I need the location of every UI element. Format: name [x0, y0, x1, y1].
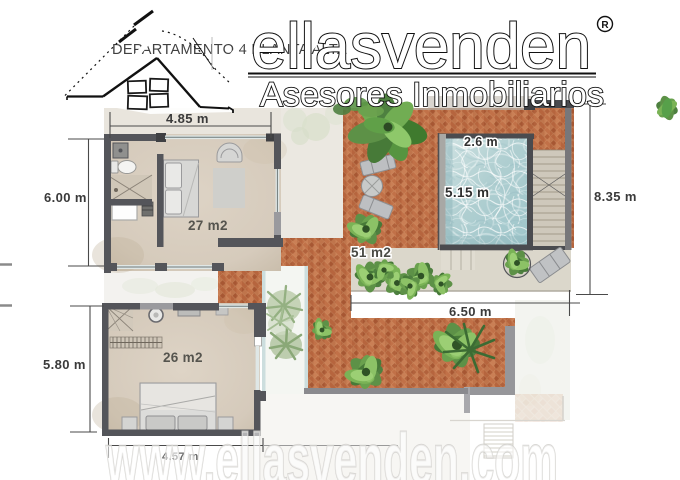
svg-text:www.ellasvenden.com: www.ellasvenden.com [105, 420, 558, 480]
svg-text:27 m2: 27 m2 [188, 218, 228, 233]
svg-text:5.15 m: 5.15 m [445, 185, 489, 200]
svg-text:ellasvenden: ellasvenden [251, 10, 591, 82]
svg-text:6.00 m: 6.00 m [44, 190, 87, 205]
svg-text:5.80 m: 5.80 m [43, 357, 86, 372]
svg-text:R: R [601, 20, 609, 31]
svg-text:26 m2: 26 m2 [163, 350, 203, 365]
svg-text:6.50 m: 6.50 m [449, 304, 492, 319]
svg-text:51 m2: 51 m2 [351, 245, 391, 260]
svg-text:8.35 m: 8.35 m [594, 189, 637, 204]
svg-text:Asesores Inmobiliarios: Asesores Inmobiliarios [260, 76, 604, 114]
svg-text:2.6 m: 2.6 m [464, 135, 498, 149]
